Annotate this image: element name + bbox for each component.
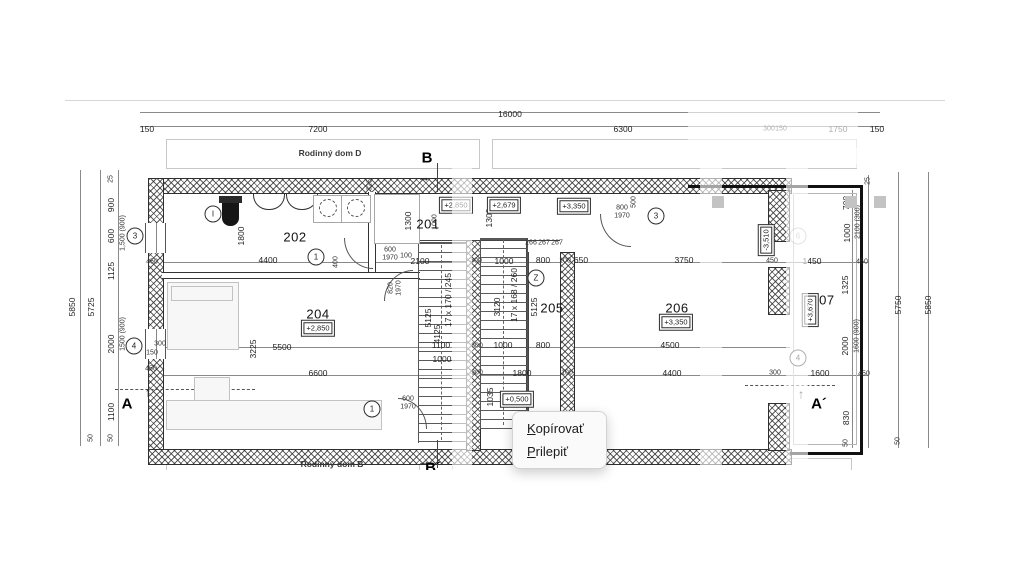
dim-label: 1970 bbox=[400, 404, 416, 411]
dim-label: 4400 bbox=[663, 369, 682, 378]
elevation-label: +2,679 bbox=[489, 199, 518, 211]
dim-label: 450 bbox=[856, 259, 868, 266]
app-window: 1600015072006300300150175015044006001970… bbox=[0, 0, 1011, 570]
dim-label: 600 bbox=[384, 247, 396, 254]
dim-line bbox=[118, 170, 119, 446]
dim-label: 2000 bbox=[841, 337, 850, 356]
stair-label: 17 x 168 / 260 bbox=[510, 268, 519, 322]
circle-marker: 3 bbox=[648, 208, 665, 225]
dim-label: 7200 bbox=[309, 125, 328, 134]
room-number: 205 bbox=[540, 302, 563, 315]
selection-grip[interactable] bbox=[845, 196, 857, 208]
dim-label: 50 bbox=[108, 434, 115, 442]
dim-label: 830 bbox=[842, 411, 851, 425]
ghost-band bbox=[700, 140, 722, 470]
dim-label: 1,500 (900) bbox=[120, 215, 127, 251]
ghost-band bbox=[452, 140, 472, 470]
section-marker: A´ bbox=[811, 397, 827, 412]
building-label: Rodinný dom D bbox=[299, 149, 362, 158]
dim-label: 1300 bbox=[404, 212, 413, 231]
window bbox=[145, 223, 166, 253]
dim-label: 450 bbox=[145, 366, 157, 373]
dim-label: 5125 bbox=[530, 298, 539, 317]
room-number: 201 bbox=[416, 218, 439, 231]
circle-marker: 4 bbox=[126, 338, 143, 355]
dim-label: 16000 bbox=[498, 110, 522, 119]
room-number: 202 bbox=[283, 231, 306, 244]
dim-label: 1325 bbox=[841, 276, 850, 295]
dim-label: 5725 bbox=[87, 298, 96, 317]
cabinet bbox=[166, 400, 382, 430]
dim-label: 5850 bbox=[68, 298, 77, 317]
dim-label: 3750 bbox=[675, 256, 694, 265]
selection-grip[interactable] bbox=[712, 196, 724, 208]
dim-label: 820 bbox=[388, 282, 395, 294]
elevation-label: +3,350 bbox=[661, 316, 690, 328]
dim-label: 800 bbox=[536, 341, 550, 350]
dim-line bbox=[80, 170, 81, 446]
dim-label: 3225 bbox=[249, 340, 258, 359]
room-number: 204 bbox=[306, 308, 329, 321]
section-line-b bbox=[437, 163, 438, 192]
dim-label: 3120 bbox=[493, 298, 502, 317]
dim-label: 800 bbox=[616, 205, 628, 212]
elevation-label: -3,510 bbox=[760, 226, 772, 253]
toilet-tank bbox=[219, 196, 242, 203]
dim-label: 150 bbox=[870, 125, 884, 134]
context-menu: Kopírovať Prilepiť bbox=[512, 411, 607, 469]
circle-marker: 3 bbox=[127, 228, 144, 245]
dim-label: 1035 bbox=[486, 388, 495, 407]
section-marker: A bbox=[122, 397, 133, 412]
building-label: Rodinný dom B bbox=[301, 460, 364, 469]
dim-label: 50 bbox=[895, 437, 902, 445]
wall-202-204 bbox=[162, 272, 420, 279]
room-number: 206 bbox=[665, 302, 688, 315]
dim-label: 6300 bbox=[614, 125, 633, 134]
door-arc bbox=[344, 238, 373, 269]
dim-label: 150 bbox=[146, 350, 158, 357]
elevation-label: +0,500 bbox=[502, 393, 531, 405]
dim-label: 400 bbox=[333, 256, 340, 268]
dim-label: 1000 bbox=[495, 257, 514, 266]
dim-label: 450 bbox=[858, 371, 870, 378]
dim-label: 4400 bbox=[259, 256, 278, 265]
dim-label: 1300 bbox=[485, 209, 494, 228]
dim-label: 500 bbox=[631, 196, 638, 208]
dim-label: 4125 bbox=[433, 325, 442, 344]
dim-label: 300 bbox=[769, 370, 781, 377]
dim-label: 150 bbox=[140, 125, 154, 134]
section-arrow-right: → bbox=[418, 171, 431, 184]
section-arrow-right: → bbox=[418, 455, 431, 468]
ghost-band bbox=[786, 140, 808, 470]
menu-item-paste-label: rilepiť bbox=[536, 444, 568, 459]
section-line-a bbox=[115, 389, 255, 390]
dim-line bbox=[868, 175, 869, 448]
dim-label: 450 bbox=[146, 259, 158, 266]
dim-label: 1800 bbox=[513, 369, 532, 378]
dim-label: 1125 bbox=[107, 262, 116, 280]
dim-label: 300 bbox=[471, 343, 483, 350]
dim-label: 1970 bbox=[382, 255, 398, 262]
drawing-viewport: 1600015072006300300150175015044006001970… bbox=[0, 0, 1011, 470]
dim-label: 50 bbox=[843, 439, 850, 447]
dim-label: 800 bbox=[536, 256, 550, 265]
dim-label: 5500 bbox=[273, 343, 292, 352]
dim-label: 4500 bbox=[661, 341, 680, 350]
kitchen-counter bbox=[374, 194, 420, 244]
chair bbox=[194, 377, 230, 402]
dim-label: 5850 bbox=[924, 296, 933, 315]
dim-label: 267 bbox=[551, 240, 563, 247]
dim-label: 1000 bbox=[843, 224, 852, 243]
dim-label: 1600 (900) bbox=[854, 319, 861, 353]
dim-label: 6600 bbox=[309, 369, 328, 378]
dim-label: 266 bbox=[525, 240, 537, 247]
wall-left bbox=[148, 178, 164, 465]
dim-label: 2100 (300) bbox=[855, 205, 862, 239]
section-marker: B bbox=[422, 151, 433, 166]
circle-marker: I bbox=[205, 206, 222, 223]
dim-label: 1800 bbox=[237, 227, 246, 246]
dim-label: 1970 bbox=[614, 213, 630, 220]
dim-label: 267 bbox=[538, 240, 550, 247]
elevation-label: +2,850 bbox=[303, 322, 332, 334]
stair-label: 17 x 170 / 245 bbox=[444, 273, 453, 327]
dim-label: 325 bbox=[367, 179, 374, 191]
sink-circle bbox=[347, 199, 365, 217]
dim-label: 2100 bbox=[411, 257, 430, 266]
dim-label: 50 bbox=[88, 434, 95, 442]
selection-grip[interactable] bbox=[874, 196, 886, 208]
menu-item-copy-label: opírovať bbox=[536, 421, 584, 436]
dim-line bbox=[100, 170, 101, 446]
menu-item-copy[interactable]: Kopírovať bbox=[513, 417, 606, 440]
dim-label: 300 bbox=[154, 341, 166, 348]
menu-item-copy-mnemonic: K bbox=[527, 421, 536, 436]
bed-pillow bbox=[171, 286, 233, 301]
menu-item-paste-mnemonic: P bbox=[527, 444, 536, 459]
dim-label: 100 bbox=[559, 258, 571, 265]
dim-label: 600 bbox=[107, 229, 116, 243]
circle-marker: 1 bbox=[364, 401, 381, 418]
dim-label: 1100 bbox=[107, 403, 116, 421]
dim-label: 25 bbox=[865, 177, 872, 185]
dim-label: 1970 bbox=[396, 280, 403, 296]
dim-label: 1600 bbox=[811, 369, 830, 378]
menu-item-paste[interactable]: Prilepiť bbox=[513, 440, 606, 463]
dim-label: 1000 bbox=[494, 341, 513, 350]
circle-marker: 1 bbox=[308, 249, 325, 266]
dim-label: 5750 bbox=[894, 296, 903, 315]
section-arrow-up: ↑ bbox=[145, 386, 152, 399]
sink-circle bbox=[319, 199, 337, 217]
ghost-band bbox=[688, 112, 858, 168]
dim-label: 900 bbox=[107, 198, 116, 212]
dim-label: 1000 bbox=[433, 355, 452, 364]
dim-label: 25 bbox=[108, 175, 115, 183]
dim-label: 300 bbox=[471, 370, 483, 377]
basin bbox=[253, 194, 285, 210]
dim-label: 600 bbox=[402, 396, 414, 403]
toilet-fixture bbox=[222, 200, 239, 226]
dim-label: 2000 bbox=[107, 335, 116, 354]
dim-label: 100 bbox=[561, 370, 573, 377]
elevation-label: +3,350 bbox=[559, 200, 588, 212]
circle-marker: Z bbox=[528, 270, 545, 287]
dim-label: 650 bbox=[574, 256, 588, 265]
dim-label: 450 bbox=[766, 258, 778, 265]
floor-plan-canvas[interactable]: 1600015072006300300150175015044006001970… bbox=[0, 0, 1011, 470]
